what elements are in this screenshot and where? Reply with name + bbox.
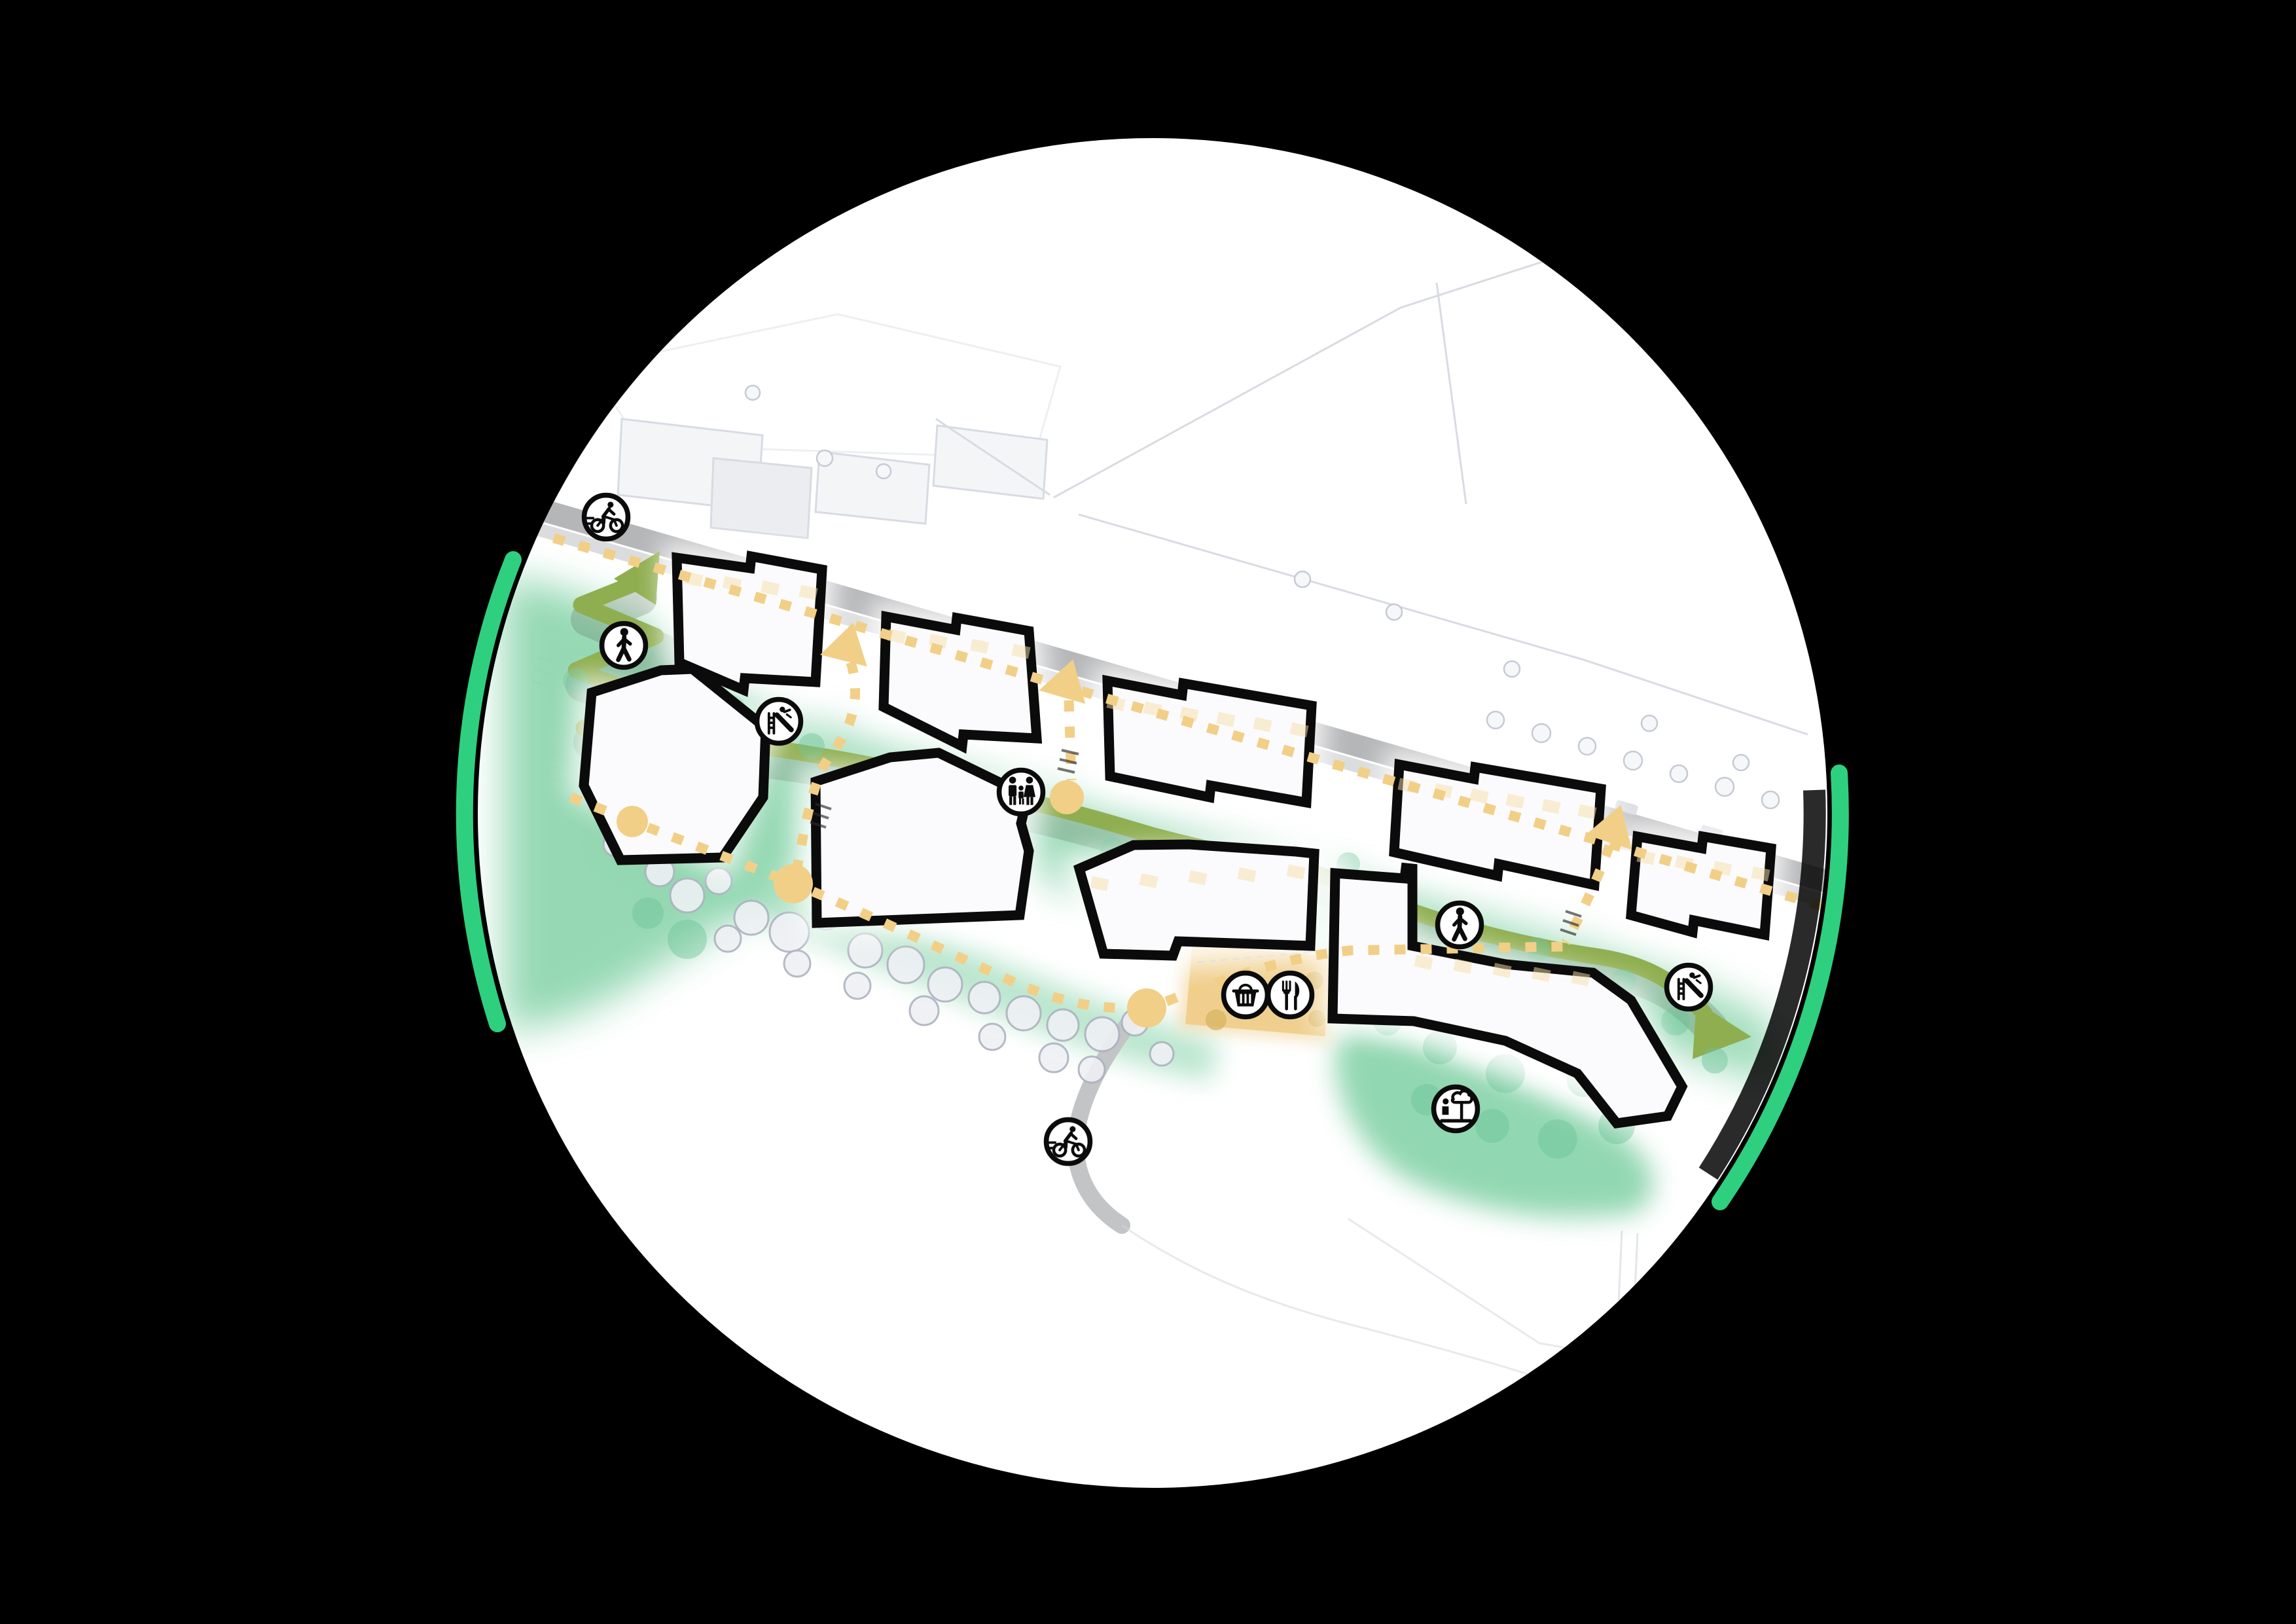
path-node: [1050, 780, 1084, 814]
tree: [632, 897, 664, 929]
tree: [817, 450, 833, 466]
tree: [1150, 1042, 1174, 1066]
tree: [1733, 755, 1749, 770]
tree: [1039, 1043, 1068, 1072]
tree: [745, 386, 760, 400]
cyclist-route-icon: [1047, 1120, 1090, 1164]
diagram-stage: [0, 0, 2296, 1624]
tree: [1641, 715, 1657, 731]
tree: [876, 464, 891, 478]
tree: [969, 982, 1000, 1013]
tree: [1715, 778, 1734, 796]
path-node: [617, 806, 648, 837]
tree: [1085, 1017, 1119, 1051]
pedestrian-route-icon: [1438, 903, 1482, 947]
park-icon: [1434, 1087, 1478, 1131]
tree: [798, 733, 825, 759]
tree: [1079, 1056, 1105, 1083]
tree: [1047, 1009, 1079, 1041]
cyclist-route-icon: [584, 496, 628, 539]
tree: [1295, 571, 1310, 587]
masterplan-svg: [0, 0, 2296, 1624]
pedestrian-route-icon: [602, 624, 646, 668]
tree: [784, 950, 810, 977]
tree: [670, 878, 704, 912]
building-south-2: [816, 753, 1029, 923]
playground-icon: [1667, 965, 1711, 1009]
tree: [1579, 738, 1596, 755]
tree: [1670, 765, 1687, 782]
tree: [734, 901, 768, 935]
tree: [1487, 712, 1504, 729]
tree: [1702, 1047, 1728, 1074]
tree: [715, 926, 741, 952]
tree: [1532, 724, 1551, 742]
tree: [1475, 1109, 1509, 1143]
tree: [668, 920, 707, 959]
tree: [910, 996, 939, 1025]
playground-icon: [757, 700, 801, 744]
tree: [1762, 791, 1779, 808]
tree: [1386, 604, 1402, 620]
path-node: [774, 864, 813, 903]
tree: [848, 933, 882, 967]
tree: [979, 1024, 1005, 1050]
building-north-5: [1631, 837, 1771, 935]
building-south-3: [1079, 844, 1314, 956]
family-icon: [999, 770, 1043, 814]
tree: [888, 947, 924, 983]
tree: [1504, 661, 1520, 677]
tree: [1624, 751, 1642, 770]
tree: [1538, 1119, 1577, 1159]
tree: [1007, 996, 1041, 1030]
tree: [844, 973, 870, 999]
shopping-icon: [1224, 973, 1268, 1017]
tree: [928, 967, 962, 1001]
path-node: [1127, 988, 1166, 1028]
building-north-3: [1107, 681, 1312, 803]
dining-icon: [1268, 973, 1312, 1017]
